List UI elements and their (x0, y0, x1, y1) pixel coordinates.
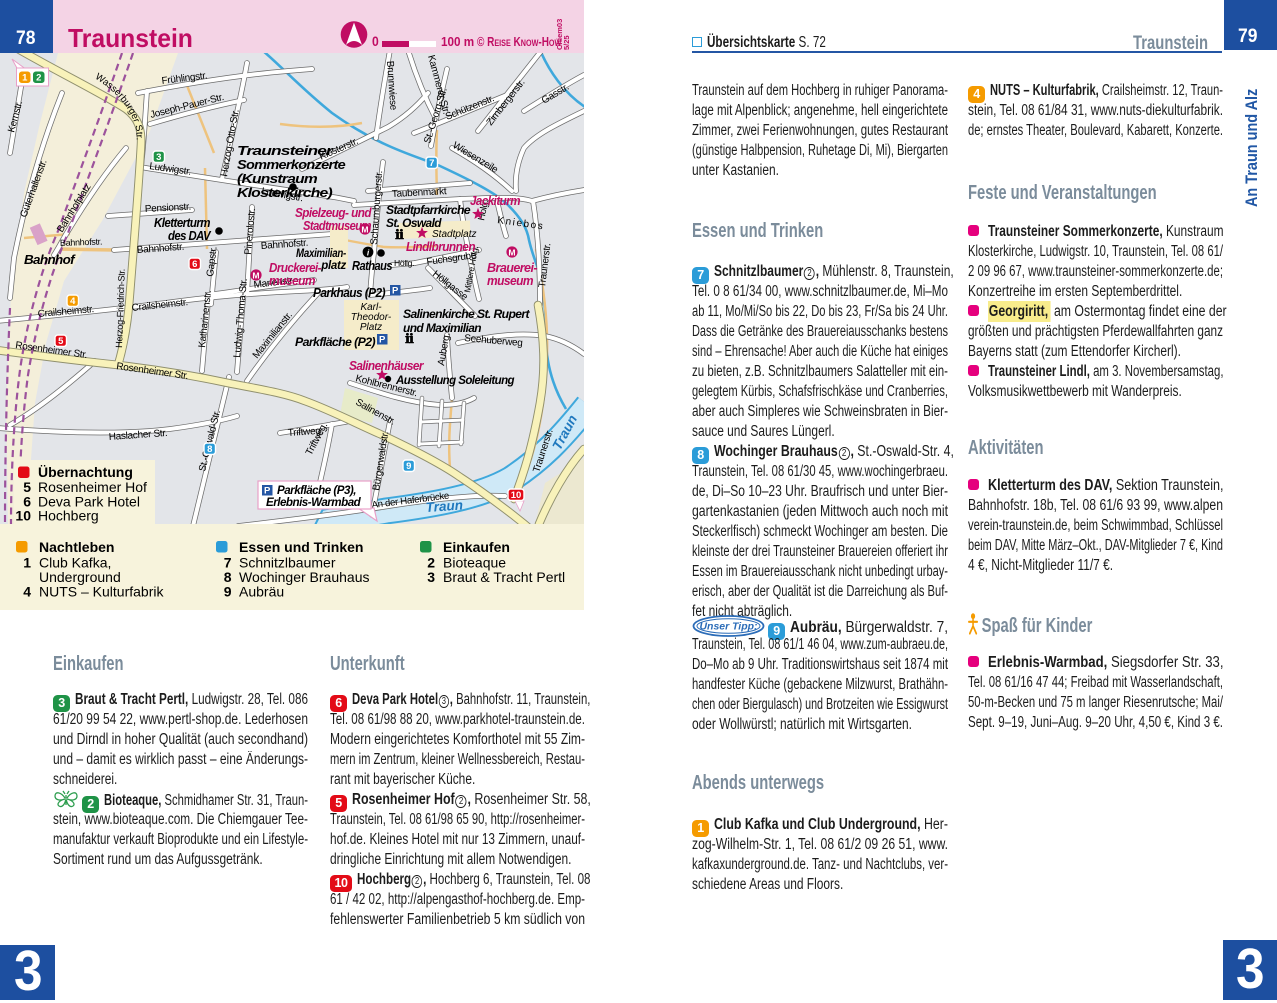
svg-text:Erlebnis-Warmbad: Erlebnis-Warmbad (266, 496, 362, 509)
svg-text:(Kunstraum: (Kunstraum (237, 172, 317, 186)
svg-text:Braut & Tracht Pertl: Braut & Tracht Pertl (443, 569, 565, 585)
svg-text:9: 9 (224, 584, 232, 600)
svg-text:ℹℹ: ℹℹ (395, 227, 404, 242)
svg-text:3: 3 (156, 152, 161, 163)
svg-text:10: 10 (511, 490, 522, 501)
svg-text:9: 9 (406, 461, 411, 472)
svg-text:Essen und Trinken: Essen und Trinken (239, 539, 363, 555)
svg-text:Einkaufen: Einkaufen (443, 539, 510, 555)
svg-text:M: M (508, 247, 515, 257)
svg-text:Rathaus: Rathaus (352, 258, 392, 273)
svg-text:Unser Tipp:: Unser Tipp: (700, 621, 758, 633)
svg-text:P: P (379, 335, 386, 346)
svg-text:Bahnhof: Bahnhof (24, 252, 76, 267)
svg-text:Salinenhäuser: Salinenhäuser (349, 358, 424, 373)
svg-text:Lindlbrunnen: Lindlbrunnen (406, 239, 476, 254)
svg-text:platz: platz (320, 260, 346, 272)
svg-text:Übernachtung: Übernachtung (38, 464, 133, 480)
svg-text:10: 10 (15, 508, 31, 524)
svg-text:NUTS – Kulturfabrik: NUTS – Kulturfabrik (39, 584, 164, 600)
svg-text:3: 3 (427, 569, 435, 585)
svg-text:6: 6 (192, 259, 197, 270)
svg-text:Traunsteiner: Traunsteiner (237, 144, 334, 158)
svg-text:des DAV: des DAV (168, 229, 212, 243)
svg-text:Ausstellung Soleleitung: Ausstellung Soleleitung (395, 373, 515, 387)
svg-text:museum: museum (269, 273, 316, 288)
svg-text:Hochberg: Hochberg (38, 508, 99, 524)
svg-text:Parkfläche (P2): Parkfläche (P2) (295, 335, 376, 349)
svg-text:und Maximilian: und Maximilian (403, 321, 481, 335)
svg-text:Traun: Traun (425, 497, 463, 515)
svg-text:7: 7 (429, 158, 434, 169)
svg-text:Bahnhofstr.: Bahnhofstr. (60, 237, 103, 248)
svg-text:Aubräu: Aubräu (239, 584, 284, 600)
svg-text:ℹℹ: ℹℹ (405, 331, 414, 346)
svg-text:museum: museum (487, 273, 534, 288)
svg-text:M: M (252, 270, 259, 280)
svg-text:Sommerkonzerte: Sommerkonzerte (237, 158, 346, 172)
svg-text:Platz: Platz (360, 322, 382, 333)
svg-text:5: 5 (58, 336, 64, 347)
svg-text:1: 1 (22, 73, 28, 84)
svg-text:P: P (392, 286, 399, 297)
svg-text:2: 2 (36, 73, 41, 84)
svg-text:Klosterkirche): Klosterkirche) (237, 186, 332, 200)
svg-text:8: 8 (207, 444, 212, 455)
svg-text:P: P (264, 486, 271, 497)
svg-text:Höllg.: Höllg. (394, 258, 414, 268)
svg-text:Jackiturm: Jackiturm (470, 193, 521, 208)
svg-text:Stadtpfarrkirche: Stadtpfarrkirche (386, 203, 471, 217)
svg-text:Parkhaus (P2): Parkhaus (P2) (313, 286, 385, 300)
svg-text:Salinenkirche St. Rupert: Salinenkirche St. Rupert (403, 307, 531, 321)
svg-text:Nachtleben: Nachtleben (39, 539, 114, 555)
svg-text:4: 4 (70, 296, 76, 307)
svg-text:4: 4 (23, 584, 31, 600)
svg-text:Maximilian-: Maximilian- (296, 248, 346, 260)
svg-text:1: 1 (23, 555, 31, 571)
svg-text:Kletterturm: Kletterturm (154, 216, 210, 230)
svg-text:M: M (361, 224, 368, 234)
